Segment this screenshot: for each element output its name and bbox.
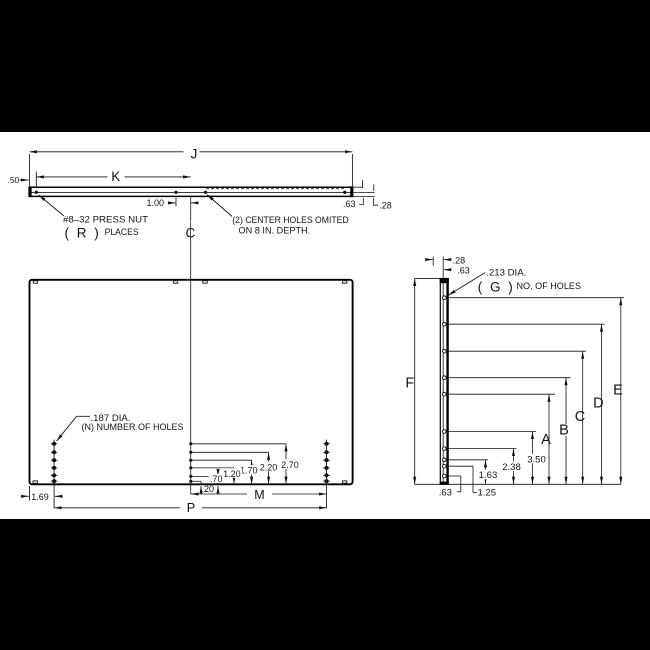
svg-text:.20: .20 [202, 484, 215, 494]
svg-text:.63: .63 [343, 199, 356, 209]
svg-text:1.70: 1.70 [240, 466, 258, 476]
svg-text:.28: .28 [453, 256, 466, 266]
svg-text:.213 DIA.: .213 DIA. [486, 268, 526, 278]
svg-text:D: D [593, 396, 603, 412]
svg-text:1.00: 1.00 [147, 198, 165, 208]
svg-text:1.20: 1.20 [223, 469, 241, 479]
svg-text:( G ): ( G ) [478, 280, 515, 295]
svg-text:.70: .70 [210, 474, 223, 484]
svg-text:PLACES: PLACES [105, 227, 139, 237]
svg-text:C: C [186, 226, 196, 241]
svg-text:.28: .28 [379, 200, 392, 210]
svg-text:1.25: 1.25 [478, 488, 497, 499]
svg-text:3.50: 3.50 [527, 454, 546, 465]
svg-text:2.20: 2.20 [260, 462, 278, 472]
svg-text:(N) NUMBER OF HOLES: (N) NUMBER OF HOLES [82, 422, 184, 432]
svg-text:(2) CENTER HOLES OMITED: (2) CENTER HOLES OMITED [232, 215, 348, 225]
svg-text:C: C [575, 409, 585, 425]
svg-text:1.63: 1.63 [479, 470, 498, 481]
svg-text:F: F [405, 376, 414, 392]
svg-text:A: A [541, 432, 551, 448]
svg-text:#8–32 PRESS NUT: #8–32 PRESS NUT [63, 214, 149, 224]
svg-text:ON 8 IN. DEPTH.: ON 8 IN. DEPTH. [239, 226, 311, 236]
svg-text:J: J [191, 147, 198, 162]
svg-text:2.70: 2.70 [281, 460, 299, 470]
svg-text:.50: .50 [8, 175, 20, 185]
svg-text:.63: .63 [439, 487, 452, 498]
svg-text:1.69: 1.69 [31, 492, 49, 502]
svg-text:K: K [111, 169, 120, 184]
svg-text:NO. OF HOLES: NO. OF HOLES [517, 281, 582, 291]
svg-text:E: E [613, 383, 623, 399]
svg-text:2.38: 2.38 [502, 462, 521, 473]
svg-text:B: B [559, 423, 569, 439]
svg-text:( R ): ( R ) [65, 225, 101, 240]
svg-text:M: M [254, 488, 264, 502]
svg-text:P: P [187, 500, 196, 515]
svg-text:.63: .63 [457, 266, 470, 276]
